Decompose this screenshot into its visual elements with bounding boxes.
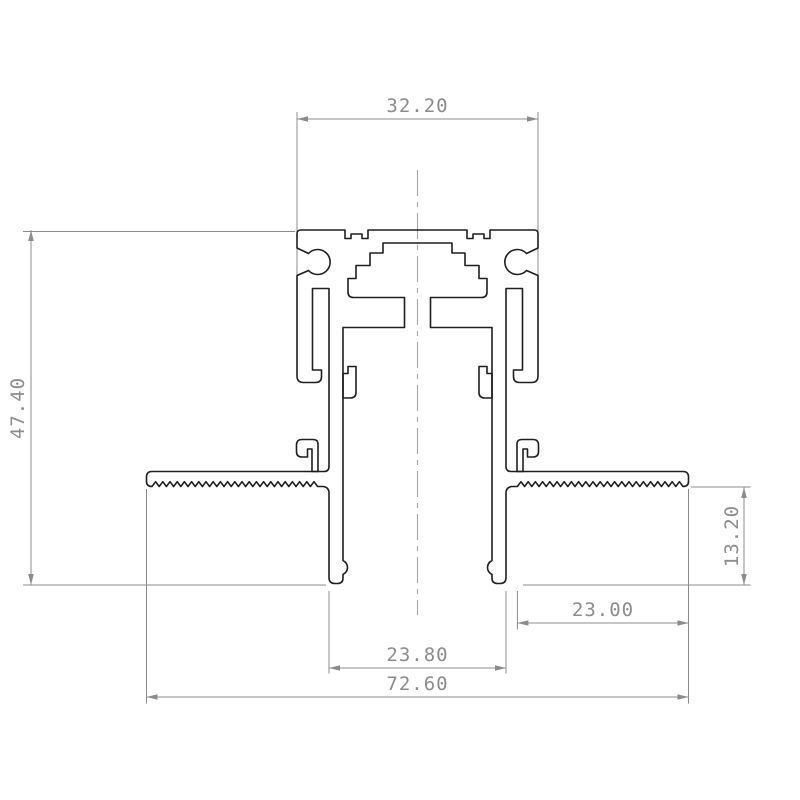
drawing-canvas: 32.20 47.40 13.20 23.00 23.80 72.60 [0,0,800,800]
dim-label-base-width: 23.80 [386,644,448,666]
dim-label-overall-height: 47.40 [7,377,29,439]
dim-label-right-flange-width: 23.00 [572,599,634,621]
dim-label-top-width: 32.20 [386,95,448,117]
dim-label-overall-width: 72.60 [386,673,448,695]
dim-label-flange-height: 13.20 [721,505,743,567]
